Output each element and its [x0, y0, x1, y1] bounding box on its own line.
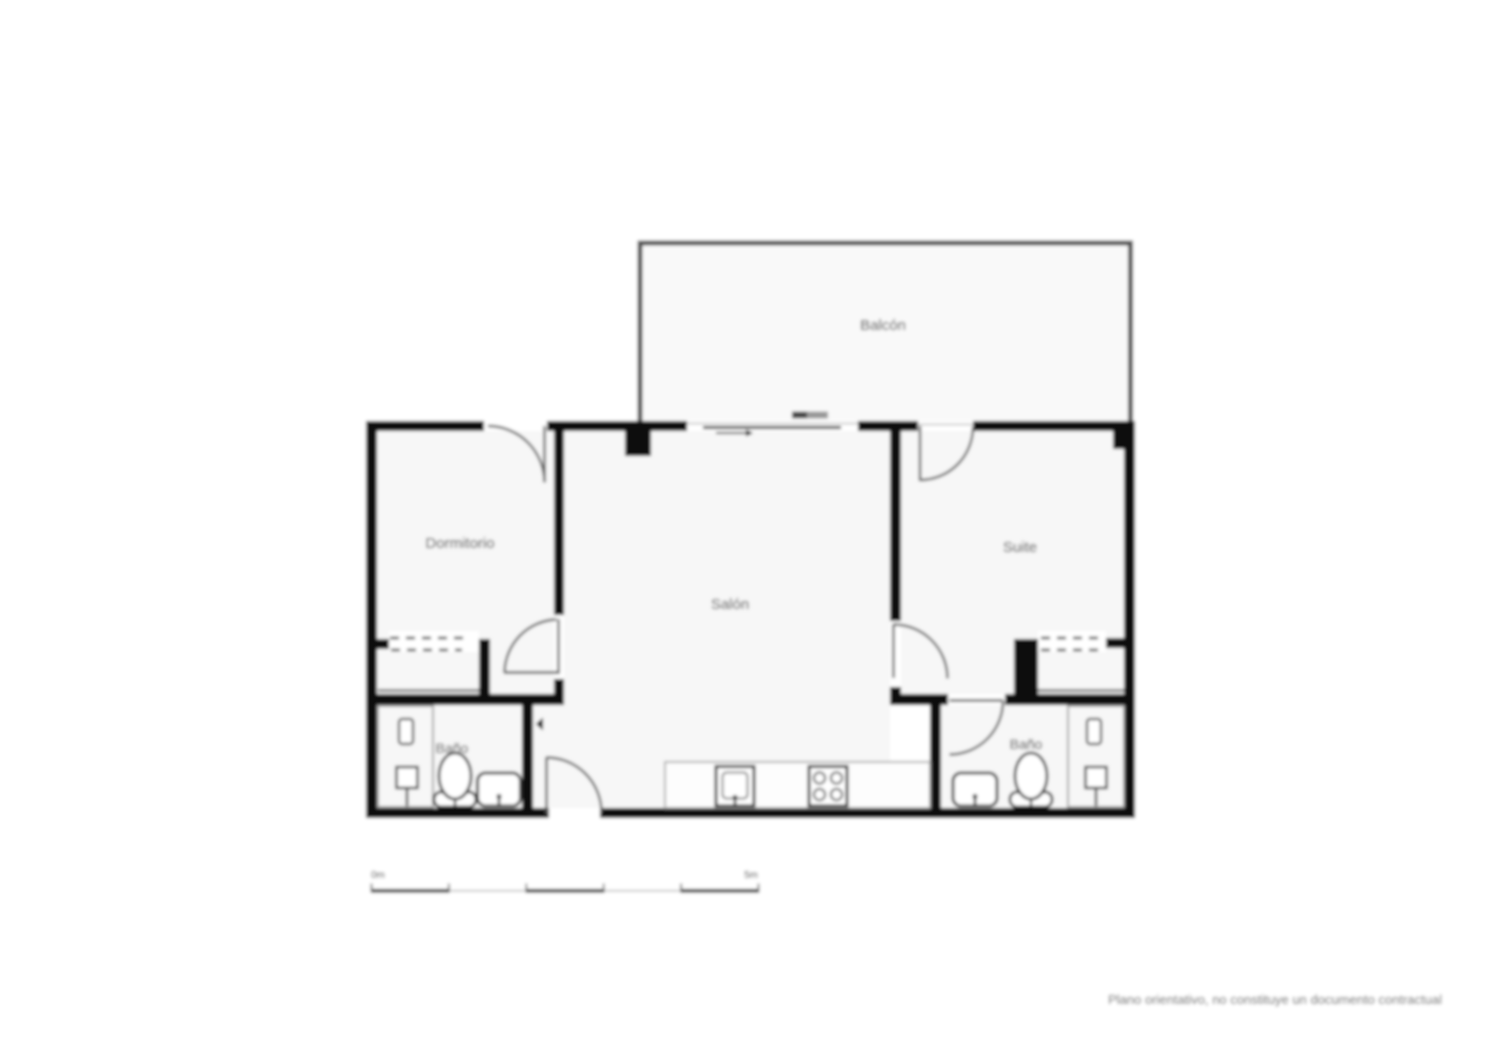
- svg-text:Baño: Baño: [1010, 736, 1043, 752]
- svg-text:Baño: Baño: [436, 740, 469, 756]
- svg-text:5m: 5m: [744, 870, 758, 881]
- svg-text:Balcón: Balcón: [860, 317, 906, 334]
- svg-text:Dormitorio: Dormitorio: [425, 535, 494, 552]
- svg-text:Plano orientativo, no constitu: Plano orientativo, no constituye un docu…: [1108, 992, 1442, 1007]
- svg-text:0m: 0m: [371, 870, 385, 881]
- svg-text:Salón: Salón: [711, 596, 749, 613]
- svg-text:Suite: Suite: [1003, 539, 1037, 556]
